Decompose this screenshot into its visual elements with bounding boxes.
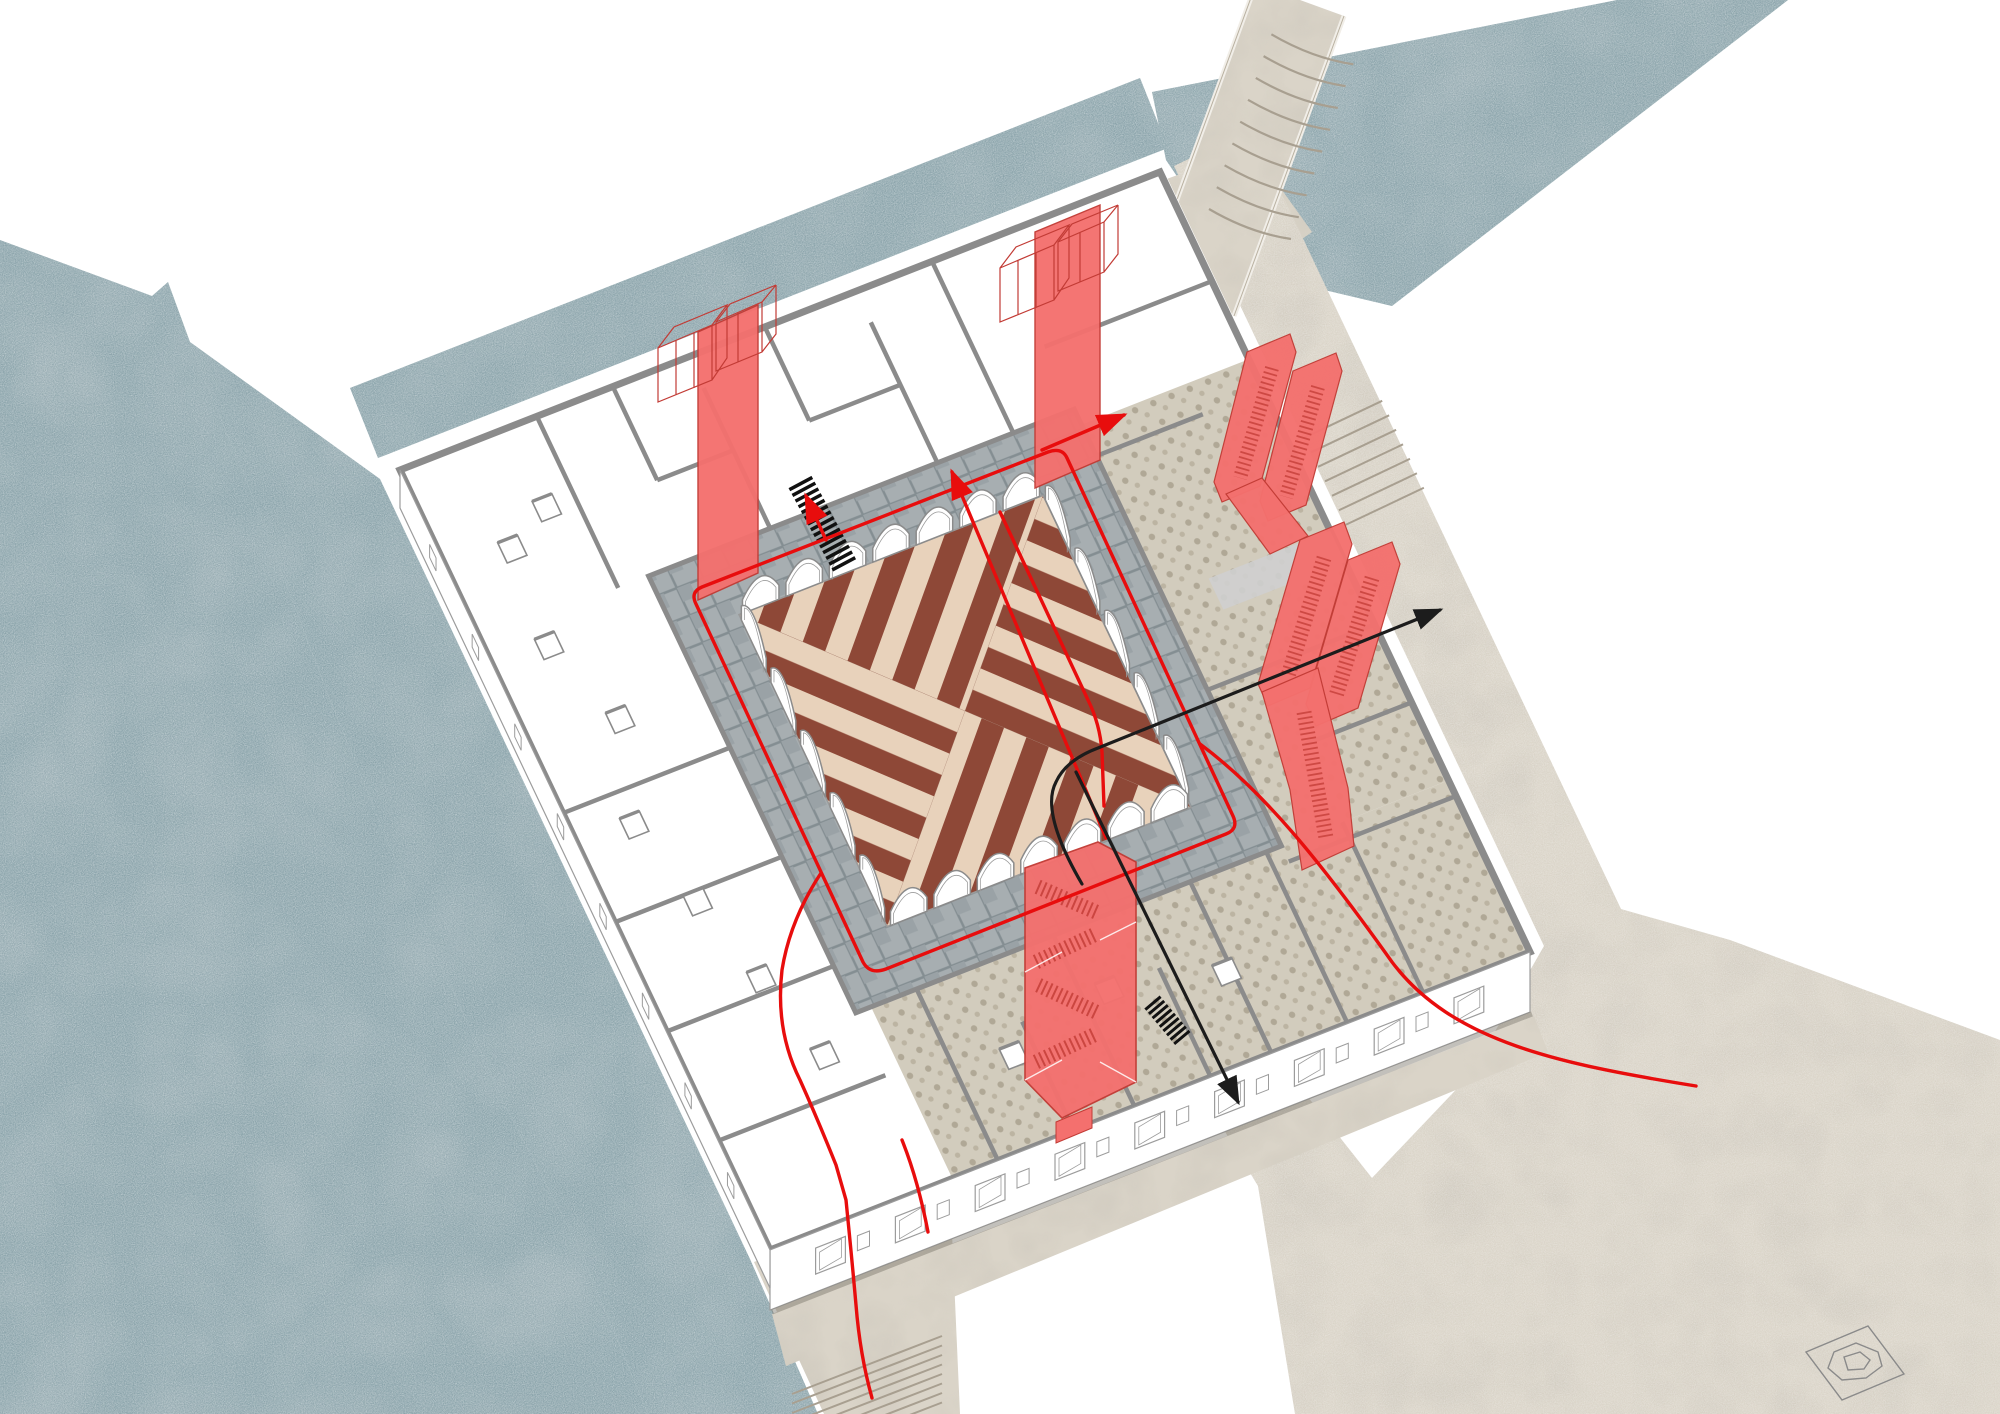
diagram-stage	[0, 0, 2000, 1414]
diagram-canvas	[0, 0, 2000, 1414]
